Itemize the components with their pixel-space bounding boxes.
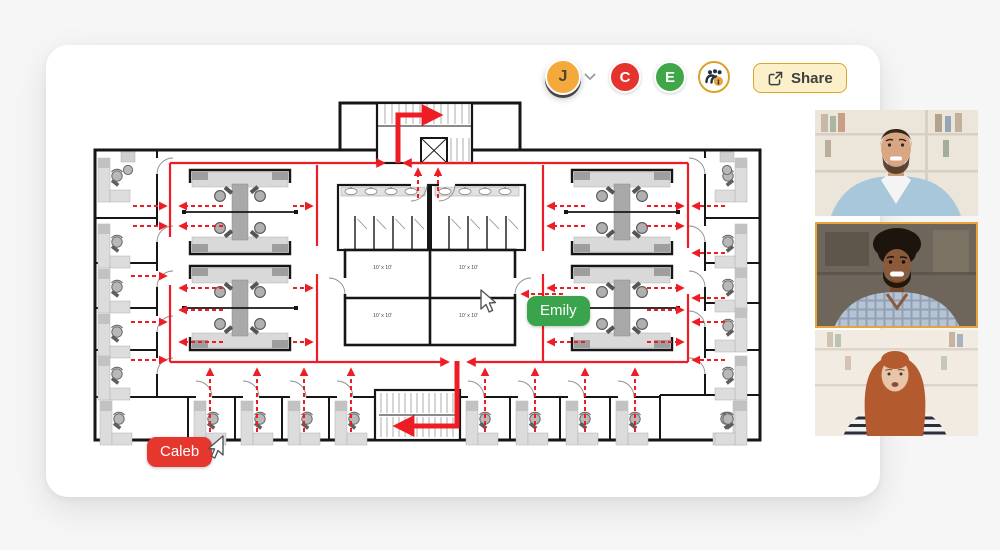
video-tile-3[interactable] bbox=[815, 330, 978, 436]
cursor-emily-icon bbox=[477, 288, 501, 316]
chevron-down-icon[interactable] bbox=[584, 73, 596, 81]
video-participant-3 bbox=[815, 330, 978, 436]
room-size-label: 10' x 10' bbox=[373, 313, 392, 319]
cursor-caleb-icon bbox=[203, 434, 227, 462]
people-group-info-icon bbox=[703, 66, 725, 88]
avatar-collaborator-c[interactable]: C bbox=[609, 61, 641, 93]
video-tile-1[interactable] bbox=[815, 110, 978, 216]
room-size-label: 10' x 10' bbox=[459, 265, 478, 271]
avatar-user-j[interactable]: J bbox=[545, 59, 581, 95]
floor-plan[interactable]: 10' x 10'10' x 10'10' x 10'10' x 10' bbox=[85, 98, 775, 448]
room-size-label: 10' x 10' bbox=[459, 313, 478, 319]
avatar-collaborator-e[interactable]: E bbox=[654, 61, 686, 93]
cursor-label-emily: Emily bbox=[527, 296, 590, 326]
share-icon bbox=[767, 70, 784, 87]
video-participant-2 bbox=[817, 224, 978, 328]
room-size-label: 10' x 10' bbox=[373, 265, 392, 271]
app-stage: 10' x 10'10' x 10'10' x 10'10' x 10' J C… bbox=[0, 0, 1000, 550]
video-tile-2-active[interactable] bbox=[815, 222, 978, 328]
video-participant-1 bbox=[815, 110, 978, 216]
share-button[interactable]: Share bbox=[753, 63, 847, 93]
participants-button[interactable] bbox=[698, 61, 730, 93]
share-button-label: Share bbox=[791, 70, 833, 87]
